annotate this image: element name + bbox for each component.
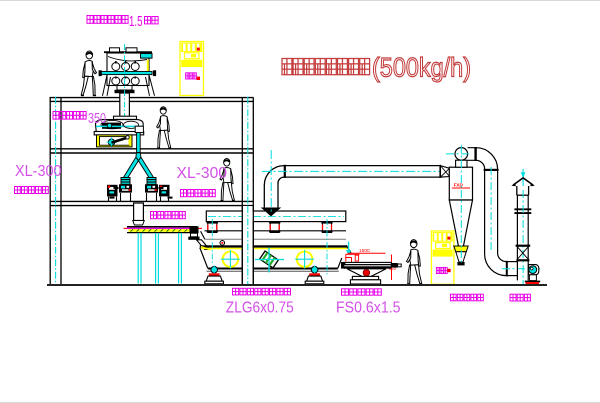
svg-text:FS0.6x1.5: FS0.6x1.5: [336, 300, 401, 317]
svg-text:XL-300: XL-300: [177, 165, 228, 182]
svg-text:1.5: 1.5: [129, 14, 143, 30]
svg-text:ZLG6x0.75: ZLG6x0.75: [226, 300, 294, 317]
svg-text:XL-300: XL-300: [15, 163, 62, 180]
svg-text:1500: 1500: [359, 248, 370, 254]
svg-text:FXD: FXD: [454, 183, 464, 188]
svg-text:350: 350: [88, 111, 106, 127]
svg-text:(500kg/h): (500kg/h): [372, 53, 471, 83]
